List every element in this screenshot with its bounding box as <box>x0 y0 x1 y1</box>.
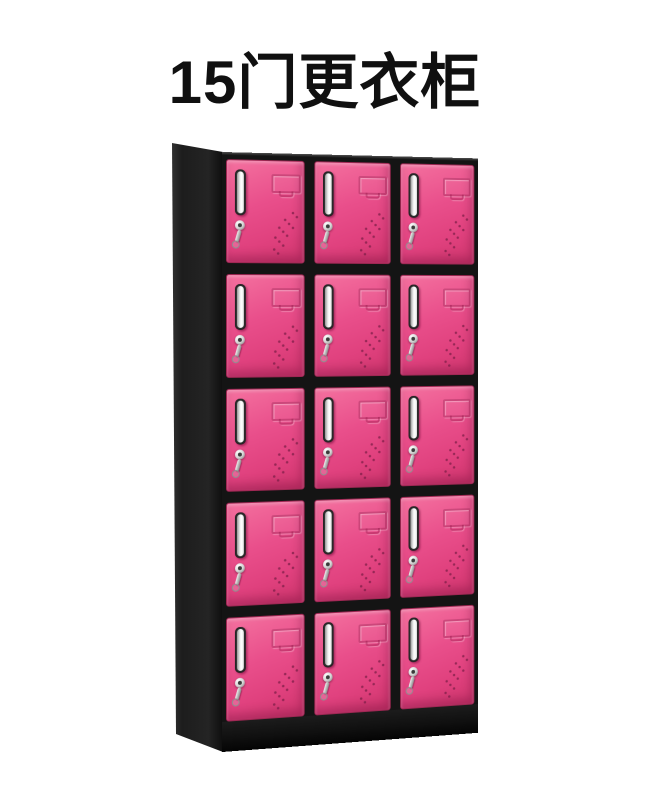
door-handle-recess <box>237 400 244 442</box>
hanging-key <box>235 344 242 357</box>
hanging-key <box>323 231 330 243</box>
door-handle-recess <box>325 173 332 214</box>
name-card-holder <box>271 174 300 193</box>
locker-door <box>226 387 305 492</box>
locker-door <box>226 614 305 722</box>
vent-holes <box>272 321 299 371</box>
door-lock <box>323 447 333 457</box>
vent-holes <box>444 651 470 701</box>
name-card-holder <box>271 628 300 648</box>
hanging-key <box>235 230 242 243</box>
vent-holes <box>359 433 386 482</box>
name-card-holder <box>443 288 471 306</box>
name-card-holder <box>358 623 386 643</box>
name-card-holder <box>271 401 300 420</box>
vent-holes <box>359 209 386 258</box>
locker-door <box>400 495 474 598</box>
locker-door <box>314 609 390 715</box>
name-card-holder <box>271 288 300 307</box>
locker-door-grid <box>226 159 474 722</box>
locker-door <box>314 386 390 489</box>
door-handle <box>409 173 419 218</box>
door-handle-recess <box>237 286 244 328</box>
name-card-holder <box>358 288 386 307</box>
hanging-key <box>235 459 242 472</box>
locker-door <box>314 498 390 603</box>
hanging-key <box>323 569 330 581</box>
cabinet-front-face <box>222 152 478 752</box>
locker-door <box>226 501 305 607</box>
vent-holes <box>444 321 470 369</box>
hanging-key <box>235 688 242 701</box>
cabinet-side-panel <box>170 140 225 758</box>
door-lock <box>409 445 418 455</box>
locker-cabinet <box>0 0 650 790</box>
product-image-page: 15门更衣柜 <box>0 0 650 790</box>
door-lock <box>323 672 333 682</box>
door-lock <box>409 667 418 677</box>
vent-holes <box>359 321 386 370</box>
door-handle-recess <box>237 171 244 213</box>
name-card-holder <box>443 508 471 527</box>
locker-door <box>400 275 474 376</box>
door-lock <box>235 678 245 689</box>
door-handle-recess <box>410 286 417 327</box>
door-handle <box>409 395 419 440</box>
door-handle-recess <box>237 629 244 671</box>
door-handle <box>323 509 334 555</box>
locker-door <box>314 161 390 264</box>
door-handle <box>409 617 419 662</box>
locker-door <box>226 159 305 263</box>
door-handle-recess <box>237 515 244 557</box>
name-card-holder <box>358 400 386 419</box>
door-handle <box>235 627 246 673</box>
locker-door <box>226 274 305 378</box>
door-handle <box>323 171 334 216</box>
door-handle <box>409 506 419 551</box>
hanging-key <box>323 456 330 468</box>
vent-holes <box>272 661 299 712</box>
vent-holes <box>272 548 299 599</box>
hanging-key <box>408 343 415 355</box>
vent-holes <box>444 541 470 590</box>
door-handle <box>323 284 334 329</box>
door-handle-recess <box>325 624 332 666</box>
door-handle-recess <box>410 620 417 661</box>
vent-holes <box>272 435 299 485</box>
name-card-holder <box>443 398 471 417</box>
door-lock <box>409 223 418 233</box>
door-handle <box>235 169 246 215</box>
door-lock <box>235 220 245 230</box>
door-handle <box>409 284 419 329</box>
locker-door <box>400 605 474 710</box>
name-card-holder <box>443 178 471 197</box>
locker-door <box>314 274 390 376</box>
vent-holes <box>359 656 386 706</box>
vent-holes <box>272 208 299 258</box>
vent-holes <box>359 544 386 594</box>
vent-holes <box>444 210 470 258</box>
door-handle-recess <box>410 508 417 549</box>
locker-door <box>400 385 474 487</box>
door-handle-recess <box>325 511 332 553</box>
door-lock <box>409 334 418 344</box>
hanging-key <box>408 565 415 577</box>
door-handle-recess <box>410 175 417 216</box>
name-card-holder <box>358 511 386 531</box>
door-handle <box>235 513 246 559</box>
vent-holes <box>444 431 470 480</box>
locker-door <box>400 163 474 264</box>
door-handle <box>235 398 246 444</box>
hanging-key <box>408 232 415 244</box>
name-card-holder <box>271 515 300 535</box>
name-card-holder <box>443 619 471 639</box>
door-handle-recess <box>410 397 417 438</box>
hanging-key <box>323 682 330 694</box>
door-lock <box>235 335 245 345</box>
hanging-key <box>408 454 415 466</box>
door-handle-recess <box>325 286 332 327</box>
door-lock <box>235 449 245 459</box>
name-card-holder <box>358 176 386 195</box>
door-lock <box>323 334 333 344</box>
door-handle <box>323 397 334 442</box>
door-handle-recess <box>325 399 332 440</box>
hanging-key <box>408 676 415 688</box>
door-lock <box>323 221 333 231</box>
door-handle <box>235 284 246 330</box>
hanging-key <box>235 573 242 586</box>
hanging-key <box>323 344 330 356</box>
door-handle <box>323 622 334 668</box>
